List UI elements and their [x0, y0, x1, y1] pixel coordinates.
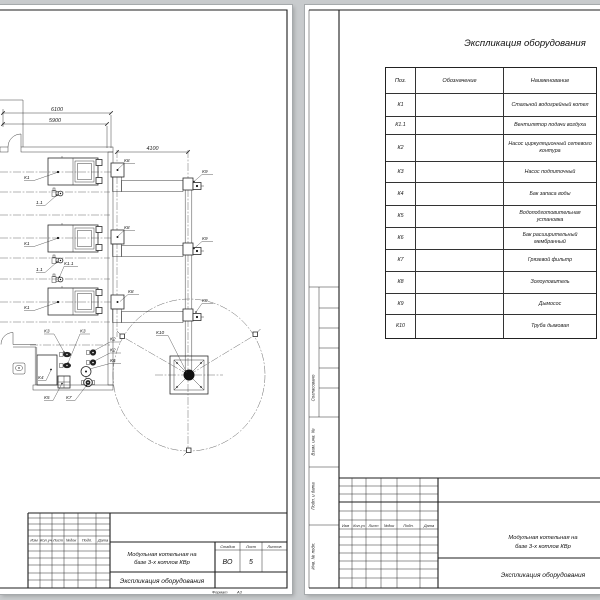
label-k8: К8 [124, 158, 130, 164]
anchor-icon [253, 332, 258, 337]
table-row: К3 Насос подпиточный [386, 161, 596, 182]
row-pos: К1.1 [386, 117, 416, 134]
row-pos: К6 [386, 228, 416, 249]
stamp-col-podp: Подп. [82, 538, 92, 543]
row-name: Золоуловитель [504, 272, 596, 293]
label-k1: К1 [24, 241, 30, 247]
stage-label: Стадия [220, 544, 235, 549]
stamp-col-ndoc: №док [384, 523, 395, 528]
left-sheet: 6100 5900 4100 [0, 5, 292, 594]
dim-6100: 6100 [51, 107, 63, 113]
stamp-col-koluch: Кол.уч [353, 523, 365, 528]
row-name: Дымосос [504, 294, 596, 314]
stamp-col-izm: Изм [30, 538, 38, 543]
stamp-col-data: Дата [97, 538, 109, 543]
stamp-col-izm: Изм [342, 523, 350, 528]
table-row: К6 Бак расширительный мембранный [386, 227, 596, 249]
sheet-value: 5 [249, 559, 253, 566]
table-row: К1 Стальной водогрейный котел [386, 93, 596, 116]
callout-k1-2: К1 [24, 239, 57, 248]
expansion-tank-k6 [81, 367, 91, 380]
boiler-2 [48, 223, 102, 252]
label-k9: К9 [202, 298, 208, 304]
row-designation [416, 206, 504, 227]
callout-f11-1: 1.1 [36, 194, 58, 206]
collector-duct [185, 190, 192, 371]
filter-k7 [82, 378, 95, 386]
format-value: А3 [236, 590, 243, 595]
label-k1-1: 1.1 [36, 200, 43, 206]
callout-k7: К7 [66, 385, 87, 401]
anchor-icon [187, 448, 192, 453]
sheet-label: Лист [245, 544, 257, 549]
sheets-label: Листов [266, 544, 281, 549]
row-name: Грязевой фильтр [504, 250, 596, 271]
row-pos: К9 [386, 294, 416, 314]
row-designation [416, 228, 504, 249]
margin-label-sign-date: Подп. и дата [311, 482, 316, 510]
label-k8: К8 [124, 225, 130, 231]
col-header-pos: Поз. [386, 68, 416, 93]
callout-k3-2: К3 [67, 329, 90, 364]
label-k10: К10 [156, 330, 164, 336]
stage-value: ВО [223, 559, 234, 566]
label-k1: К1 [24, 175, 30, 181]
doc-title: Экспликация оборудования [120, 577, 205, 585]
label-k4: К4 [38, 375, 44, 381]
label-k2: К2 [110, 348, 116, 354]
row-designation [416, 250, 504, 271]
col-header-name: Наименование [504, 68, 596, 93]
row-name: Труба дымовая [504, 315, 596, 338]
callout-k2-1: К2 [94, 337, 121, 352]
table-row: К9 Дымосос [386, 293, 596, 314]
callouts: К1 К1 К1 1.1 1.1 К1.1 К8 К8 К8 К9 К9 К9 … [24, 158, 213, 401]
doc-title: Экспликация оборудования [501, 571, 586, 579]
row-pos: К3 [386, 162, 416, 182]
row-name: Насос циркуляционный сетевого контура [504, 135, 596, 161]
label-k1-1: 1.1 [36, 267, 43, 273]
right-title-block: Изм Кол.уч Лист №док Подп. Дата Модульна… [339, 478, 600, 588]
row-designation [416, 183, 504, 205]
row-pos: К5 [386, 206, 416, 227]
schedule-title: Экспликация оборудования [435, 38, 600, 49]
row-pos: К8 [386, 272, 416, 293]
boiler-3 [48, 286, 102, 315]
desktop-background: 6100 5900 4100 [0, 0, 600, 600]
stamp-col-list: Лист [52, 538, 64, 543]
sink [13, 363, 25, 374]
table-row: К1.1 Вентилятор подачи воздуха [386, 116, 596, 134]
water-treatment-k5 [58, 376, 70, 388]
callout-k2-2: К2 [94, 348, 121, 362]
label-k2: К2 [110, 337, 116, 343]
pump-k3-1 [60, 352, 72, 357]
project-title: базе 3-х котлов КВр [515, 544, 572, 550]
callout-k10: К10 [156, 330, 187, 373]
table-row: К5 Водоподготовительная установка [386, 205, 596, 227]
label-k5: К5 [44, 395, 50, 401]
row-name: Бак расширительный мембранный [504, 228, 596, 249]
flue-line-1 [111, 163, 204, 192]
table-row: К7 Грязевой фильтр [386, 249, 596, 271]
callout-k4: К4 [38, 370, 51, 381]
callout-k9-3: К9 [195, 298, 213, 313]
pump-k3-2 [60, 363, 72, 368]
table-row: К10 Труба дымовая [386, 314, 596, 338]
project-title: Модульная котельная на [127, 552, 197, 558]
margin-cells: Согласовано Взам. инв. № Подп. и дата Ин… [309, 287, 339, 570]
row-name: Вентилятор подачи воздуха [504, 117, 596, 134]
label-k7: К7 [66, 395, 72, 401]
dim-4100: 4100 [147, 146, 159, 152]
margin-label-approved: Согласовано [311, 374, 316, 401]
stamp-col-podp: Подп. [403, 523, 413, 528]
callout-k9-1: К9 [193, 169, 213, 182]
project-title: Модульная котельная на [508, 535, 578, 541]
row-designation [416, 94, 504, 116]
label-k1: К1 [24, 305, 30, 311]
left-title-block: Изм Кол.уч Лист №док Подп. Дата Модульна… [28, 513, 287, 594]
row-designation [416, 294, 504, 314]
row-designation [416, 117, 504, 134]
row-designation [416, 162, 504, 182]
label-k3: К3 [44, 329, 50, 335]
stamp-col-ndoc: №док [66, 538, 77, 543]
boiler-1 [48, 156, 102, 185]
row-designation [416, 272, 504, 293]
callout-f11-2: 1.1 [36, 261, 58, 273]
table-row: К2 Насос циркуляционный сетевого контура [386, 134, 596, 161]
row-pos: К1 [386, 94, 416, 116]
stamp-col-list: Лист [367, 523, 379, 528]
stamp-col-data: Дата [423, 523, 435, 528]
callout-k3-1: К3 [44, 329, 65, 353]
callout-k5: К5 [44, 383, 63, 401]
table-row: К4 Бак запаса воды [386, 182, 596, 205]
stamp-col-koluch: Кол.уч [40, 538, 52, 543]
row-name: Бак запаса воды [504, 183, 596, 205]
row-name: Насос подпиточный [504, 162, 596, 182]
callout-k11: К1.1 [59, 261, 78, 278]
label-k6: К6 [110, 358, 116, 364]
label-k3: К3 [80, 329, 86, 335]
label-k9: К9 [202, 169, 208, 175]
row-name: Водоподготовительная установка [504, 206, 596, 227]
row-pos: К2 [386, 135, 416, 161]
table-header-row: Поз. Обозначение Наименование [386, 68, 596, 93]
row-pos: К4 [386, 183, 416, 205]
project-title: базе 3-х котлов КВр [134, 560, 191, 566]
callout-k1-3: К1 [24, 303, 57, 312]
door-arc [1, 333, 13, 345]
callout-k1-1: К1 [24, 173, 57, 182]
fan-3 [52, 274, 63, 283]
label-k9: К9 [202, 236, 208, 242]
plan-drawing: 6100 5900 4100 [0, 5, 292, 594]
margin-label-replace-inv: Взам. инв. № [311, 428, 316, 455]
equipment-schedule-table: Поз. Обозначение Наименование К1 Стально… [385, 67, 597, 339]
dim-5900: 5900 [49, 118, 61, 124]
margin-label-inv-orig: Инв. № подл. [311, 542, 316, 569]
row-name: Стальной водогрейный котел [504, 94, 596, 116]
flue-line-2 [111, 230, 204, 257]
row-designation [416, 315, 504, 338]
table-row: К8 Золоуловитель [386, 271, 596, 293]
anchor-icon [120, 334, 125, 339]
door-arc [8, 134, 21, 147]
row-pos: К10 [386, 315, 416, 338]
row-pos: К7 [386, 250, 416, 271]
label-k8: К8 [128, 289, 134, 295]
label-k1-1: К1.1 [64, 261, 74, 267]
row-designation [416, 135, 504, 161]
right-sheet: Согласовано Взам. инв. № Подп. и дата Ин… [305, 5, 600, 594]
format-label: Формат [212, 590, 228, 595]
col-header-designation: Обозначение [416, 68, 504, 93]
sheet-frame [0, 10, 287, 588]
